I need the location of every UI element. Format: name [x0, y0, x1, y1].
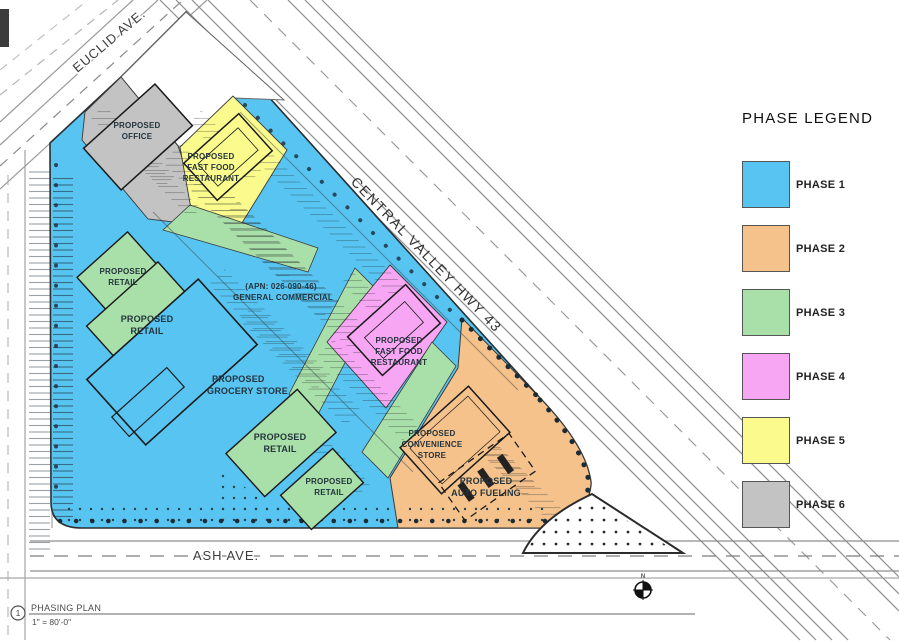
svg-text:PROPOSED: PROPOSED: [306, 477, 353, 486]
phase-legend: PHASE LEGEND PHASE 1 PHASE 2 PHASE 3 PHA…: [732, 110, 892, 545]
legend-row-phase-1: PHASE 1: [732, 161, 892, 208]
svg-text:FAST FOOD: FAST FOOD: [187, 163, 235, 172]
phase-1-swatch: [742, 161, 790, 208]
phasing-plan-sheet: N EUCLID AVE. CENTRAL VALLEY HWY 43 ASH …: [0, 0, 899, 641]
svg-text:PROPOSED: PROPOSED: [376, 336, 423, 345]
phase-5-label: PHASE 5: [796, 435, 845, 447]
phase-5-swatch: [742, 417, 790, 464]
svg-text:RETAIL: RETAIL: [314, 488, 344, 497]
offsite-west-parking: [29, 168, 50, 553]
phase-legend-title: PHASE LEGEND: [742, 110, 892, 127]
phase-4-swatch: [742, 353, 790, 400]
sheet-edge-mark: [0, 9, 9, 47]
legend-row-phase-4: PHASE 4: [732, 353, 892, 400]
phase-3-swatch: [742, 289, 790, 336]
svg-text:RETAIL: RETAIL: [108, 278, 138, 287]
titleblock: 1 PHASING PLAN 1" = 80'-0": [11, 603, 695, 627]
phase-4-label: PHASE 4: [796, 371, 845, 383]
svg-text:(APN: 026-090-46): (APN: 026-090-46): [245, 282, 317, 291]
legend-row-phase-6: PHASE 6: [732, 481, 892, 528]
svg-text:OFFICE: OFFICE: [122, 132, 153, 141]
fast-food-north-label: PROPOSED FAST FOOD RESTAURANT: [183, 152, 240, 183]
svg-text:GROCERY STORE: GROCERY STORE: [207, 386, 288, 396]
svg-text:CONVENIENCE: CONVENIENCE: [402, 440, 463, 449]
svg-text:FAST FOOD: FAST FOOD: [375, 347, 423, 356]
phase-2-swatch: [742, 225, 790, 272]
legend-row-phase-5: PHASE 5: [732, 417, 892, 464]
phase-6-label: PHASE 6: [796, 499, 845, 511]
north-label: N: [641, 574, 645, 580]
ash-ave-label: ASH AVE.: [193, 548, 259, 563]
svg-text:PROPOSED: PROPOSED: [121, 314, 174, 324]
south-landscape-strip-east: [400, 500, 548, 526]
svg-text:RESTAURANT: RESTAURANT: [183, 174, 240, 183]
phase-2-label: PHASE 2: [796, 243, 845, 255]
svg-text:PROPOSED: PROPOSED: [212, 374, 265, 384]
legend-row-phase-3: PHASE 3: [732, 289, 892, 336]
phase-6-swatch: [742, 481, 790, 528]
svg-text:PROPOSED: PROPOSED: [100, 267, 147, 276]
svg-text:PROPOSED: PROPOSED: [460, 476, 513, 486]
svg-text:AUTO FUELING: AUTO FUELING: [451, 488, 521, 498]
sheet-detail-number: 1: [16, 608, 21, 618]
svg-text:PROPOSED: PROPOSED: [254, 432, 307, 442]
fast-food-east-label: PROPOSED FAST FOOD RESTAURANT: [371, 336, 428, 367]
svg-text:PROPOSED: PROPOSED: [114, 121, 161, 130]
svg-text:RESTAURANT: RESTAURANT: [371, 358, 428, 367]
sheet-scale: 1" = 80'-0": [32, 617, 71, 627]
phase-1-label: PHASE 1: [796, 179, 845, 191]
svg-text:RETAIL: RETAIL: [263, 444, 296, 454]
svg-text:GENERAL COMMERCIAL: GENERAL COMMERCIAL: [233, 293, 333, 302]
svg-text:PROPOSED: PROPOSED: [188, 152, 235, 161]
svg-text:STORE: STORE: [418, 451, 447, 460]
legend-row-phase-2: PHASE 2: [732, 225, 892, 272]
phase-3-label: PHASE 3: [796, 307, 845, 319]
svg-text:PROPOSED: PROPOSED: [409, 429, 456, 438]
sheet-title: PHASING PLAN: [31, 603, 101, 613]
svg-text:RETAIL: RETAIL: [130, 326, 163, 336]
